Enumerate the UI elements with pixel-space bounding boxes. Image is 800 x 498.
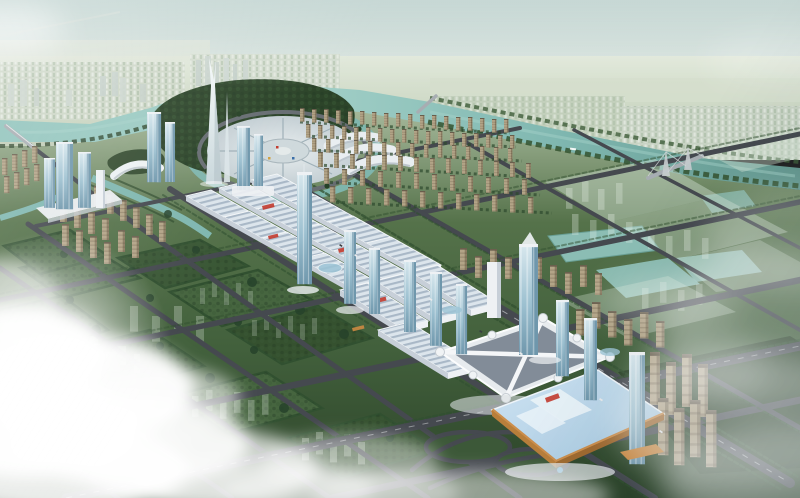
aerial-masterplan-rendering: Aerial master-plan rendering of a riverf… bbox=[0, 0, 800, 498]
rendering-canvas: Aerial master-plan rendering of a riverf… bbox=[0, 0, 800, 498]
light-overlay bbox=[0, 0, 800, 498]
